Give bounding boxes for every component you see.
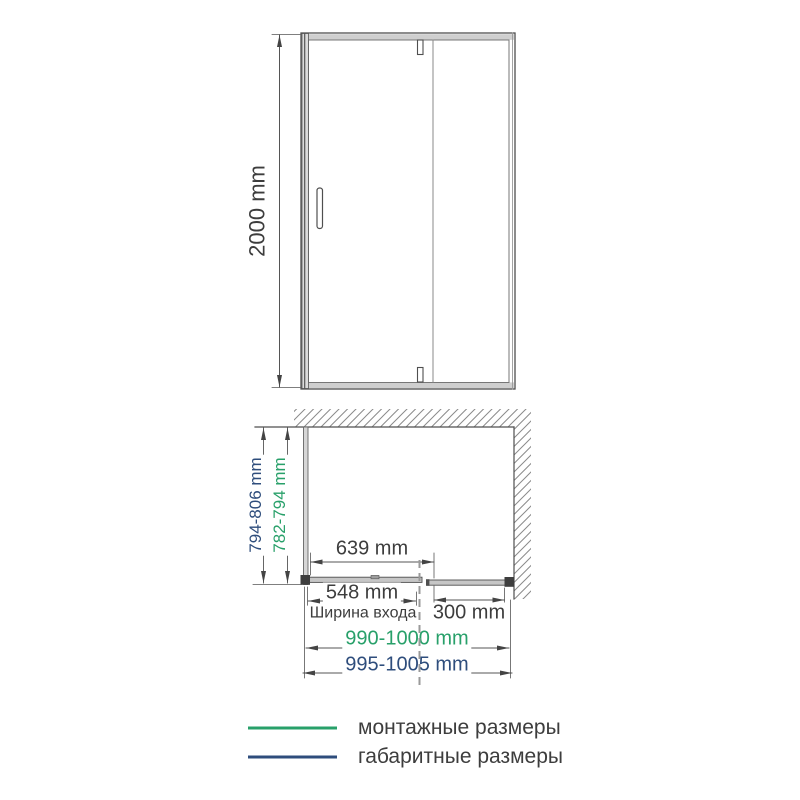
fixed-panel-dim-label: 300 mm [430,603,508,624]
entrance-dim-label: 548 mm [323,583,401,604]
depth-mounting-dim-label: 782-794 mm [271,454,289,555]
legend-mounting-label: монтажные размеры [358,716,561,740]
technical-drawing-page: 2000 mm 794-806 mm 782-794 mm 639 mm 548… [0,0,800,800]
height-dim-label: 2000 mm [245,162,268,260]
legend-overall-label: габаритные размеры [358,745,563,769]
depth-overall-dim-label: 794-806 mm [247,454,265,555]
width-mounting-dim-label: 990-1000 mm [342,629,471,650]
width-overall-dim-label: 995-1005 mm [342,655,471,676]
labels-layer: 2000 mm 794-806 mm 782-794 mm 639 mm 548… [0,0,800,800]
entrance-caption: Ширина входа [307,606,420,623]
glass-width-dim-label: 639 mm [333,539,411,560]
